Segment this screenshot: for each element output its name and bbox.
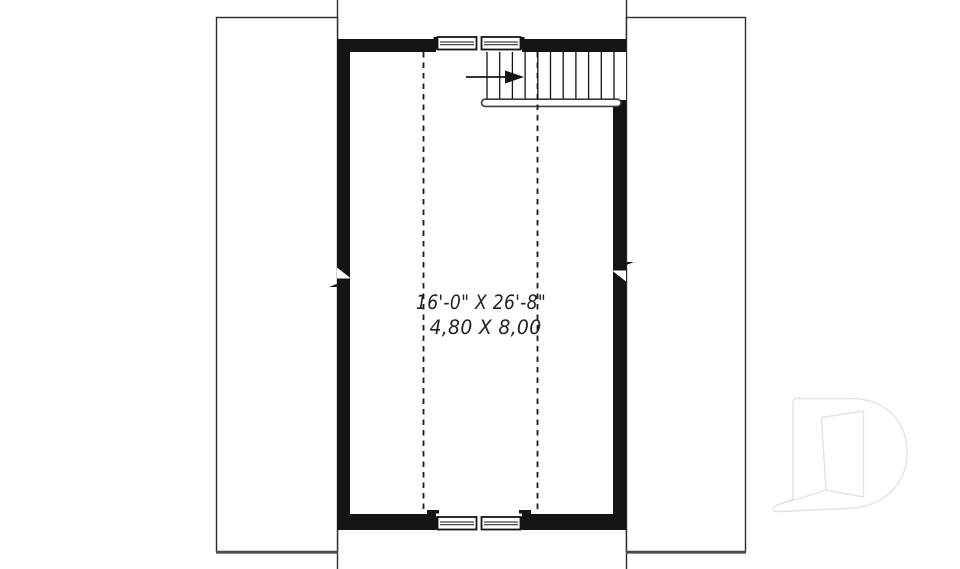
room-interior [337, 39, 626, 530]
floor-plan-canvas: 16'-0" X 26'-8" 4,80 X 8,00 [0, 0, 960, 569]
window-top-cap-right [521, 37, 525, 50]
floorplan-page: 16'-0" X 26'-8" 4,80 X 8,00 [0, 0, 960, 569]
roof-panel-left [217, 18, 338, 552]
room-dimension-metric: 4,80 X 8,00 [430, 316, 542, 339]
window-bottom-unit-1 [438, 517, 477, 530]
window-bottom-cap-left [434, 517, 438, 530]
window-top-cap-left [434, 37, 438, 50]
room-dimension-imperial: 16'-0" X 26'-8" [416, 291, 546, 314]
window-bottom-cap-right [521, 517, 525, 530]
window-top-unit-2 [482, 37, 521, 50]
window-top [434, 37, 525, 53]
window-bottom-unit-2 [482, 517, 521, 530]
roof-panel-right [627, 18, 746, 552]
window-top-unit-1 [438, 37, 477, 50]
stair-handrail [482, 99, 622, 106]
wall-right [613, 100, 626, 530]
window-bottom [434, 514, 525, 531]
